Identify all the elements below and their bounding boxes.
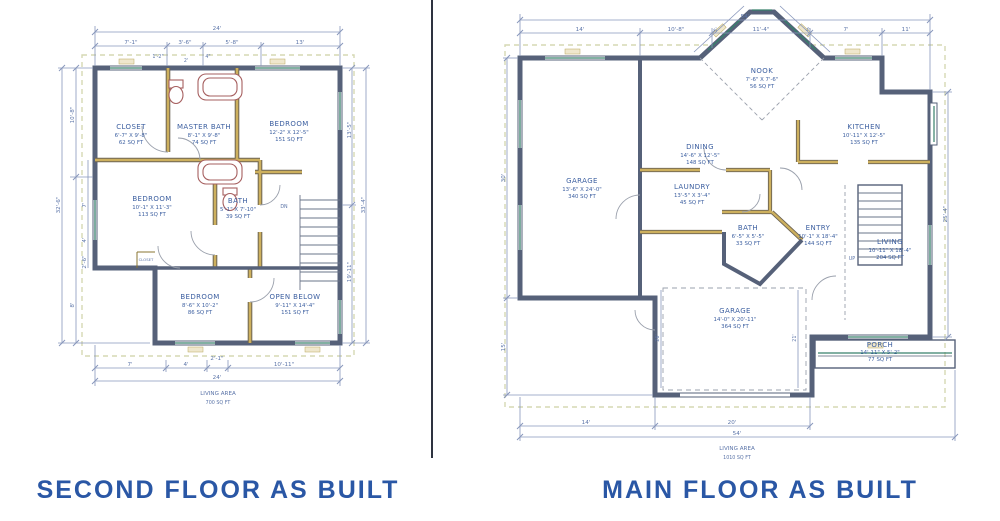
room-area-nook: 56 SQ FT [750,84,775,90]
room-dims-garage-2: 14'-0" X 20'-11" [714,317,757,323]
dim-top-seg: 10'-8" [668,27,685,33]
living-area-value: 700 SQ FT [206,400,231,406]
room-dims-living: 10'-11" X 18'-4" [869,248,912,254]
room-dims-kitchen: 10'-11" X 12'-5" [843,133,886,139]
room-label-bedroom-3: BEDROOM [180,293,219,301]
room-label-bath: BATH [738,224,758,232]
dim-top-seg: 7'-1" [124,40,138,46]
room-dims-bath: 6'-5" X 5'-5" [732,234,765,240]
stairs-dn-label: DN [280,204,288,210]
floor-plan-sheet: 24' 7'-1" 3'-6" 5'-8" 13' 1'-2" 2' 4" 7'… [0,0,1000,521]
dim-bottom-seg: 10'-11" [274,362,295,368]
room-label-nook: NOOK [751,67,773,75]
room-label-bedroom-1: BEDROOM [269,120,308,128]
room-area-laundry: 45 SQ FT [680,200,705,206]
room-label-garage-2: GARAGE [719,307,751,315]
room-label-living: LIVING [877,238,903,246]
room-label-garage-1: GARAGE [566,177,598,185]
sheet-divider-line [431,0,433,458]
stairs-up-label: UP [849,256,856,262]
second-floor-title: SECOND FLOOR AS BUILT [8,476,428,505]
dim-top-total: 54' [741,14,750,20]
room-dims-garage-1: 13'-6" X 24'-0" [562,187,602,193]
dim-right-seg: 19'-11" [347,261,353,282]
room-area-bedroom-1: 151 SQ FT [275,137,303,143]
living-area-value: 1010 SQ FT [723,455,751,461]
room-dims-bedroom-2: 10'-1" X 11'-3" [132,205,172,211]
dim-top-small: 4" [205,54,210,60]
dim-left-seg: 7' [82,202,88,207]
living-area-label: LIVING AREA [719,446,755,452]
plan-drawing: 24' 7'-1" 3'-6" 5'-8" 13' 1'-2" 2' 4" 7'… [0,0,1000,521]
room-label-kitchen: KITCHEN [847,123,880,131]
room-area-bath: 33 SQ FT [736,241,761,247]
room-label-bedroom-2: BEDROOM [132,195,171,203]
dim-top-seg: 13' [296,40,305,46]
room-area-garage-2: 364 SQ FT [721,324,749,330]
room-area-master-bath: 74 SQ FT [192,140,217,146]
second-floor-plan: 24' 7'-1" 3'-6" 5'-8" 13' 1'-2" 2' 4" 7'… [56,26,370,406]
room-area-bedroom-3: 86 SQ FT [188,310,213,316]
dim-bottom-seg: 14' [582,420,591,426]
room-area-dining: 148 SQ FT [686,160,714,166]
dim-top-seg: 11'-4" [753,27,770,33]
room-area-bath: 39 SQ FT [226,214,251,220]
dim-top-seg: 3'-6" [178,40,192,46]
room-area-entry: 144 SQ FT [804,241,832,247]
dim-right-seg: 13'-5" [347,121,353,138]
room-dims-bedroom-3: 8'-6" X 10'-2" [182,303,218,309]
room-area-closet: 62 SQ FT [119,140,144,146]
dim-top-seg: 7' [843,27,848,33]
dim-right-total: 33'-4" [361,196,367,213]
dim-interior: 21' [792,334,798,341]
room-area-living: 204 SQ FT [876,255,904,261]
dim-top-seg: 11' [902,27,911,33]
dim-bottom-seg: 20' [728,420,737,426]
dim-bottom-seg: 7' [127,362,132,368]
dim-left-seg: 4' [82,237,88,242]
room-area-bedroom-2: 113 SQ FT [138,212,166,218]
dim-interior: 26' [655,334,661,341]
dim-bottom-total: 54' [733,431,742,437]
dim-top-seg: 5'-8" [225,40,239,46]
room-label-bath: BATH [228,197,248,205]
small-closet-label: CLOSET [139,257,154,262]
room-dims-bath: 5'-1" X 7'-10" [220,207,256,213]
room-label-laundry: LAUNDRY [674,183,710,191]
dim-top-seg: 14' [576,27,585,33]
room-dims-nook: 7'-6" X 7'-6" [746,77,779,83]
room-dims-porch: 14'-11" X 5'-2" [860,350,900,356]
room-dims-open-below: 9'-11" X 14'-4" [275,303,315,309]
room-label-closet: CLOSET [116,123,146,131]
dim-bottom-total: 24' [213,375,222,381]
dim-right-seg: 25'-4" [943,205,949,222]
room-area-open-below: 151 SQ FT [281,310,309,316]
room-area-garage-1: 340 SQ FT [568,194,596,200]
dim-left-seg: 10'-8" [70,106,76,123]
room-dims-bedroom-1: 12'-2" X 12'-5" [269,130,309,136]
room-dims-master-bath: 8'-1" X 9'-8" [188,133,221,139]
dim-left-total: 32'-6" [56,196,62,213]
room-area-porch: 77 SQ FT [868,357,893,363]
main-floor-plan: 54' 14' 10'-8" 11'-4" 7' 11' 5' 5' 30' 1… [501,6,958,461]
room-dims-laundry: 13'-5" X 3'-4" [674,193,710,199]
dim-top-small: 2' [184,58,188,64]
dim-left-seg: 2'-6" [82,255,88,269]
dim-bottom-seg: 4' [183,362,188,368]
dim-left-seg: 30' [501,174,507,183]
dim-left-seg: 8' [70,302,76,307]
dim-left-seg: 15' [501,343,507,352]
room-area-kitchen: 135 SQ FT [850,140,878,146]
dim-top-small: 1'-2" [152,54,163,60]
dim-bottom-seg: 2'-1" [210,356,224,362]
room-label-open-below: OPEN BELOW [270,293,321,301]
room-label-master-bath: MASTER BATH [177,123,231,131]
room-dims-closet: 6'-7" X 9'-8" [115,133,148,139]
main-floor-title: MAIN FLOOR AS BUILT [560,476,960,505]
room-label-dining: DINING [686,143,714,151]
room-dims-entry: 10'-1" X 18'-4" [798,234,838,240]
living-area-label: LIVING AREA [200,391,236,397]
room-label-entry: ENTRY [806,224,831,232]
room-dims-dining: 14'-6" X 12'-5" [680,153,720,159]
room-label-porch: PORCH [867,341,893,349]
dim-top-total: 24' [213,26,222,32]
